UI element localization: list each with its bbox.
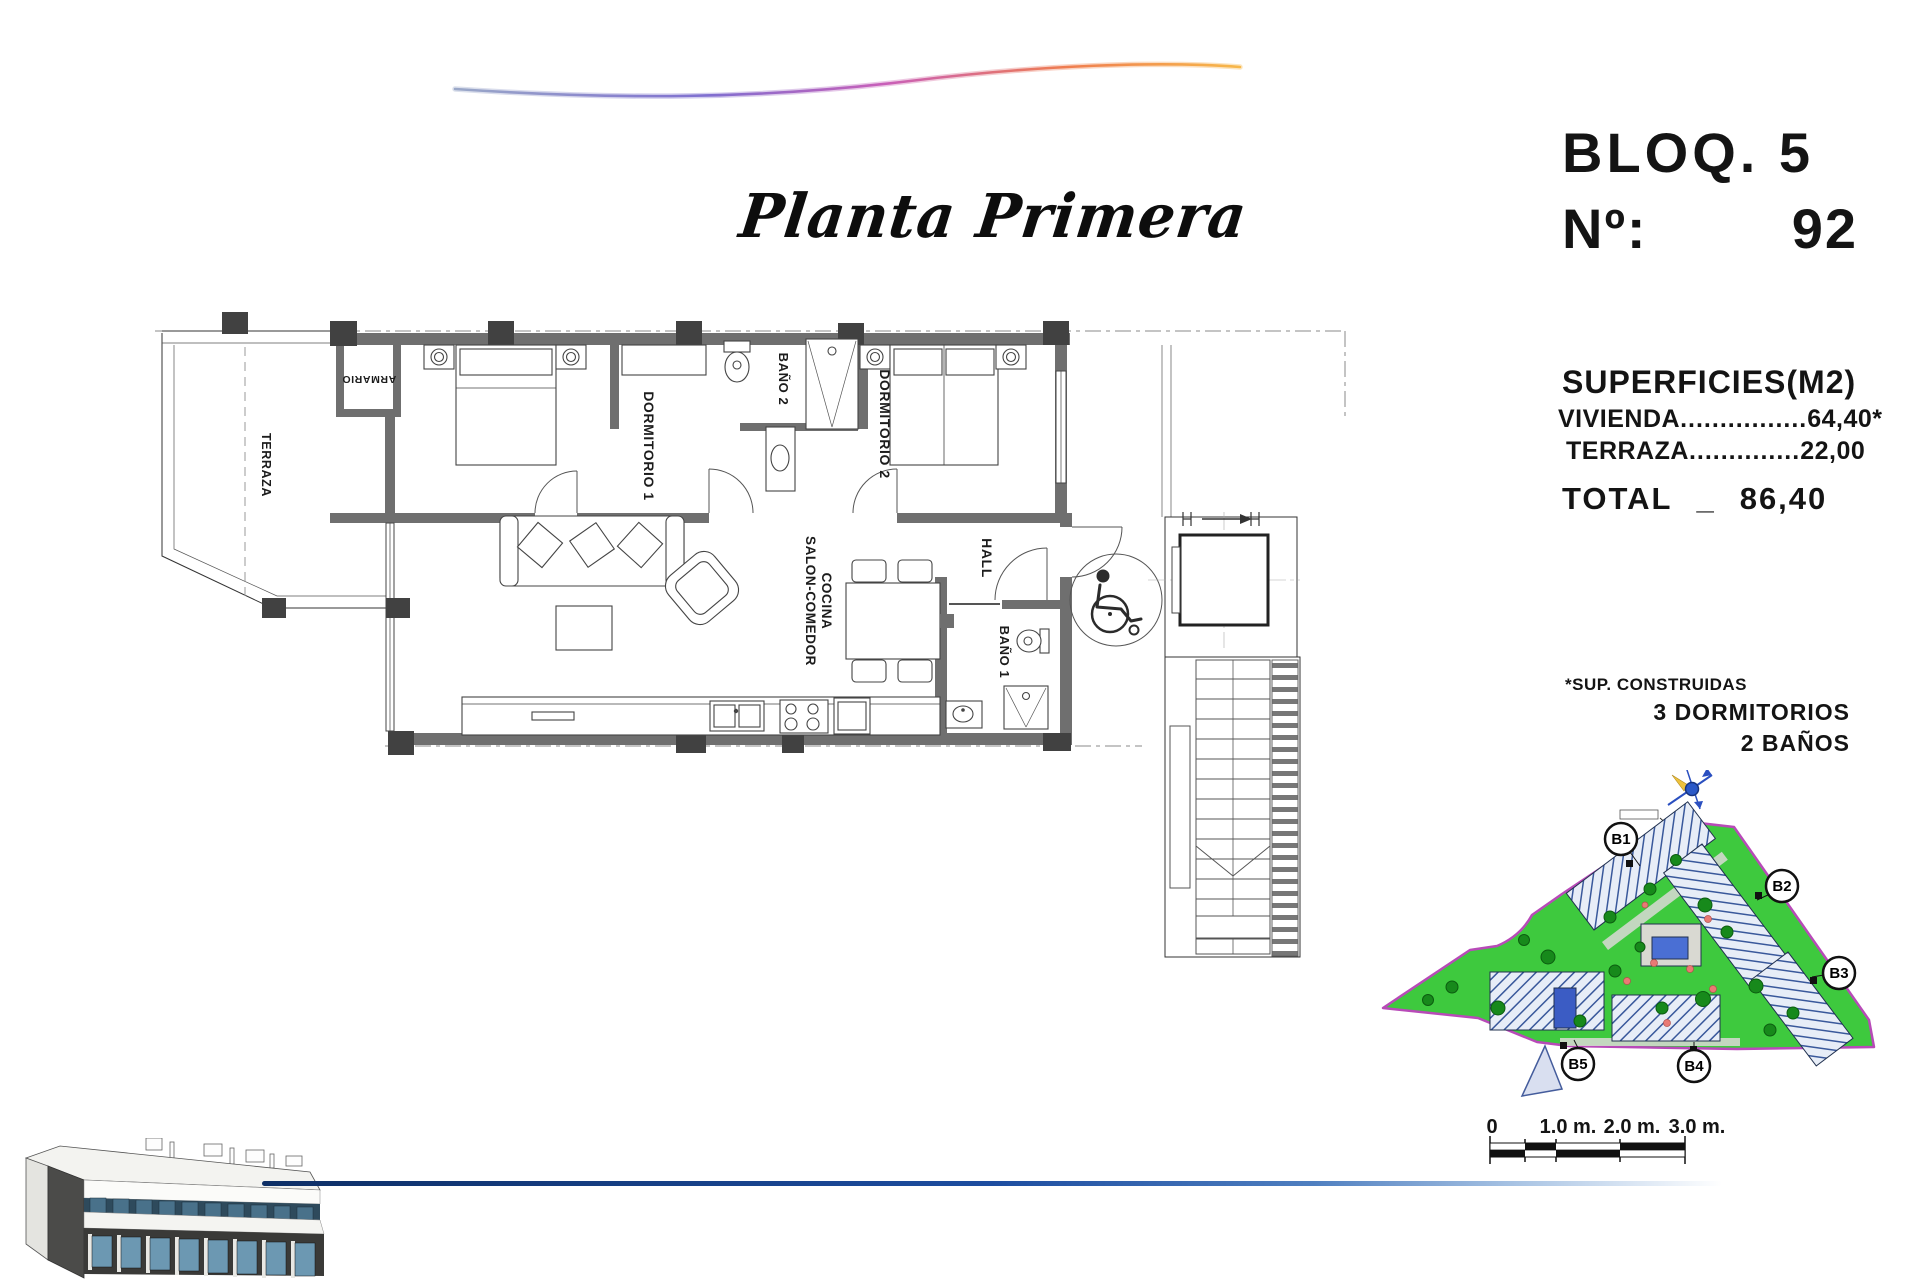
room-label-cocina: COCINA bbox=[819, 573, 834, 630]
total-label: TOTAL bbox=[1562, 481, 1672, 517]
scale-label-3m: 3.0 m. bbox=[1669, 1116, 1726, 1138]
scale-label-0: 0 bbox=[1486, 1116, 1497, 1138]
total-separator: _ bbox=[1696, 481, 1715, 517]
block-badge-b2: B2 bbox=[1772, 878, 1791, 895]
central-pool bbox=[1652, 937, 1688, 959]
room-label-terraza: TERRAZA bbox=[259, 433, 273, 497]
block-label: BLOQ. 5 bbox=[1562, 120, 1814, 185]
plan-sheet: Planta Primera BLOQ. 5 Nº: 92 SUPERFICIE… bbox=[0, 0, 1920, 1280]
bathrooms-note: 2 BAÑOS bbox=[1500, 730, 1850, 757]
terrace: TERRAZA bbox=[162, 331, 390, 608]
floor-plan: TERRAZA bbox=[140, 250, 1360, 1000]
scale-label-2m: 2.0 m. bbox=[1604, 1116, 1661, 1138]
room-label-dormitorio1: DORMITORIO 1 bbox=[641, 391, 657, 501]
surface-value: 64,40* bbox=[1807, 405, 1882, 433]
room-label-bano1: BAÑO 1 bbox=[997, 626, 1012, 679]
bedroom1-furniture bbox=[424, 345, 586, 465]
total-value: 86,40 bbox=[1740, 481, 1828, 517]
plot-boundary-lines bbox=[155, 331, 1345, 746]
bottom-rule-line bbox=[262, 1181, 1722, 1186]
unit-number-value: 92 bbox=[1792, 196, 1858, 261]
built-surface-note: *SUP. CONSTRUIDAS bbox=[1565, 675, 1747, 695]
room-label-hall: HALL bbox=[979, 538, 995, 578]
block-badge-b1: B1 bbox=[1611, 831, 1630, 848]
block-badge-b3: B3 bbox=[1829, 965, 1848, 982]
bath-counter-icon bbox=[622, 345, 706, 375]
surface-value: 22,00 bbox=[1800, 437, 1865, 465]
dining-table-icon bbox=[846, 583, 940, 659]
room-label-salon: SALON-COMEDOR bbox=[803, 536, 818, 666]
gradient-swoosh bbox=[440, 56, 1260, 110]
surface-row-vivienda: VIVIENDA................64,40* bbox=[1558, 405, 1883, 434]
surface-label: TERRAZA bbox=[1566, 437, 1689, 465]
chair-icon bbox=[852, 660, 886, 682]
surface-label: VIVIENDA bbox=[1558, 405, 1680, 433]
living-room-furniture bbox=[462, 516, 954, 735]
site-legend-chip bbox=[1620, 810, 1658, 819]
building-b5 bbox=[1490, 972, 1604, 1030]
surface-row-terraza: TERRAZA..............22,00 bbox=[1566, 437, 1865, 466]
block-badge-b5: B5 bbox=[1568, 1056, 1587, 1073]
stairs-icon bbox=[1165, 657, 1300, 957]
coffee-table-icon bbox=[556, 606, 612, 650]
unit-number-row: Nº: 92 bbox=[1562, 196, 1858, 261]
north-compass-icon bbox=[1668, 770, 1712, 809]
chair-icon bbox=[852, 560, 886, 582]
stair-railing bbox=[1272, 660, 1298, 956]
surfaces-heading: SUPERFICIES(M2) bbox=[1562, 364, 1856, 401]
scale-bar: 0 1.0 m. 2.0 m. 3.0 m. bbox=[1478, 1116, 1728, 1176]
b5-flag bbox=[1522, 1046, 1562, 1096]
chair-icon bbox=[898, 660, 932, 682]
unit-number-label: Nº: bbox=[1562, 196, 1648, 261]
dotted-leader: ................ bbox=[1680, 405, 1807, 433]
chair-icon bbox=[898, 560, 932, 582]
site-plan: B1 B2 B3 B4 B5 bbox=[1380, 770, 1900, 1100]
bedrooms-note: 3 DORMITORIOS bbox=[1500, 699, 1850, 726]
building-sketch bbox=[18, 1138, 328, 1280]
page-title: Planta Primera bbox=[736, 181, 1215, 252]
room-label-armario: ARMARIO bbox=[342, 373, 396, 385]
room-label-dormitorio2: DORMITORIO 2 bbox=[877, 369, 893, 479]
toilet-icon bbox=[724, 341, 750, 352]
wheelchair-accessibility-icon bbox=[1070, 554, 1162, 646]
pool-b5 bbox=[1554, 988, 1576, 1028]
block-badge-b4: B4 bbox=[1684, 1058, 1704, 1075]
dotted-leader: .............. bbox=[1689, 437, 1800, 465]
scale-label-1m: 1.0 m. bbox=[1540, 1116, 1597, 1138]
elevator-icon bbox=[1148, 512, 1300, 657]
room-label-bano2: BAÑO 2 bbox=[776, 353, 791, 406]
total-row: TOTAL _ 86,40 bbox=[1562, 481, 1827, 517]
